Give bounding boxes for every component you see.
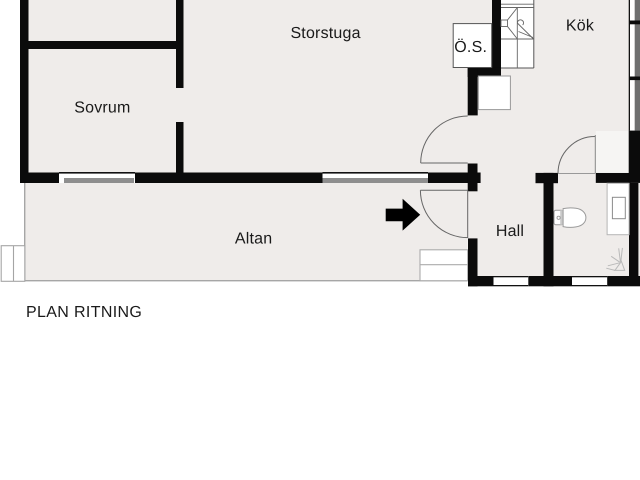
svg-text:Kök: Kök [566,18,595,35]
svg-text:Hall: Hall [496,223,524,240]
svg-text:Altan: Altan [235,230,272,247]
svg-text:Sovrum: Sovrum [74,100,130,117]
svg-text:PLAN RITNING: PLAN RITNING [26,304,142,321]
svg-text:Storstuga: Storstuga [290,25,360,42]
svg-text:Ö.S.: Ö.S. [454,38,487,56]
